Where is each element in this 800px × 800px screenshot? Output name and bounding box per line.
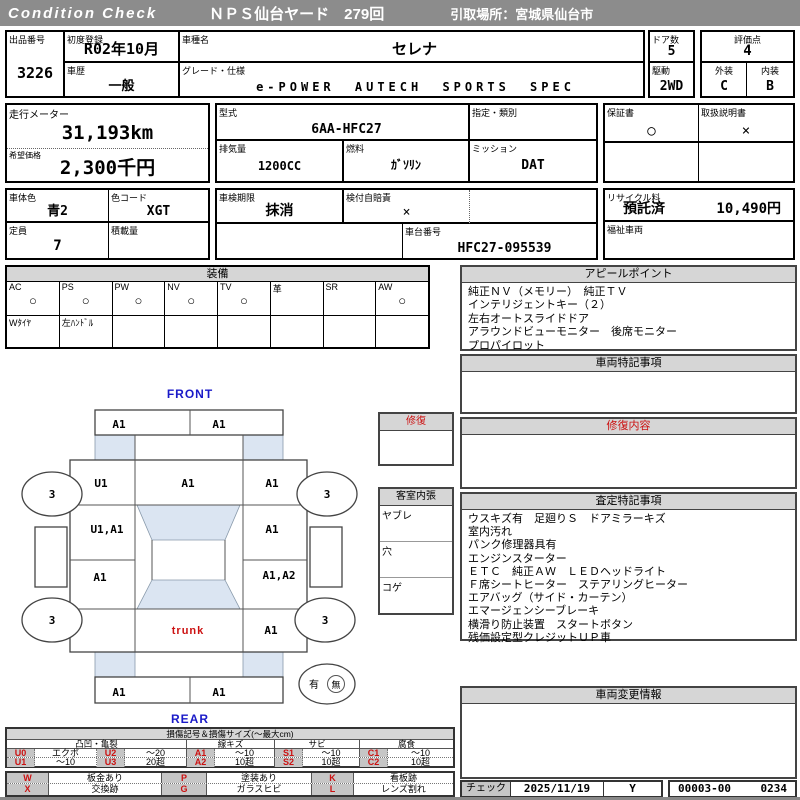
equipment-mark: ○ — [113, 293, 165, 308]
equipment-mark: ○ — [376, 293, 428, 308]
insurance-cell: 検付自賠責 × — [344, 190, 470, 224]
mark-code: G — [162, 784, 207, 795]
panel-rear-bumper-right: A1 — [212, 686, 226, 699]
interior-grade-cell: 内装 B — [747, 63, 793, 96]
equipment-label: 革 — [273, 282, 282, 295]
spare-absent-label: 無 — [331, 679, 340, 690]
equipment-cell-leather: 革 — [271, 282, 324, 315]
panel-rear-bumper-left: A1 — [112, 686, 126, 699]
odometer-price-table: 走行メーター 31,193km 希望価格 2,300千円 — [5, 103, 210, 183]
recycle-fee-value: 預託済 10,490円 — [607, 198, 791, 218]
drive-label: 駆動 — [652, 64, 670, 77]
wheel-tread-front-left: 3 — [49, 488, 56, 501]
panel-rear-door-left: A1 — [93, 571, 107, 584]
panel-front-door-right: A1 — [265, 523, 279, 536]
door-count-value: 5 — [652, 44, 691, 59]
mark-desc: 板金あり — [49, 773, 162, 783]
door-count-cell: ドア数 5 — [650, 32, 693, 63]
rear-window-shade — [137, 580, 240, 609]
capacity-value: 7 — [9, 238, 106, 254]
equipment-note: Wﾀｲﾔ — [9, 316, 31, 329]
pickup-location: 引取場所：宮城県仙台市 — [450, 4, 593, 23]
warranty-book-cell: 保証書 ○ — [605, 105, 699, 143]
windshield-shade — [137, 505, 240, 540]
front-label: FRONT — [167, 387, 213, 401]
recycle-status: 預託済 — [623, 198, 665, 218]
rocker-panel-left — [35, 527, 67, 587]
check-date: 2025/11/19 — [511, 782, 604, 796]
chassis-number-cell: 車台番号 HFC27-095539 — [403, 224, 596, 258]
legend-code: A1 — [187, 749, 215, 757]
legend-code: C1 — [360, 749, 388, 757]
assessment-notes-title: 査定特記事項 — [462, 494, 795, 510]
panel-front-door-left: U1,A1 — [90, 523, 123, 536]
legend-size: 〜10 — [303, 749, 360, 757]
grade-value: e-POWER AUTECH SPORTS SPEC — [182, 80, 641, 94]
equipment-cell-aw: AW○ — [376, 282, 428, 315]
model-code-cell: 型式 6AA-HFC27 — [217, 105, 470, 141]
transmission-cell: ミッション DAT — [470, 141, 596, 181]
wheel-tread-rear-right: 3 — [322, 614, 329, 627]
rear-label: REAR — [171, 712, 209, 726]
history-cell: 車歴 一般 — [65, 63, 180, 96]
lot-number-cell: 出品番号 3226 — [7, 32, 65, 96]
mark-code: P — [162, 773, 207, 783]
first-registration-cell: 初度登録 R02年10月 — [65, 32, 180, 63]
drive-value: 2WD — [652, 79, 691, 94]
equipment-note-cell — [165, 316, 218, 348]
insurance-empty-cell — [470, 190, 596, 224]
exterior-grade-value: C — [704, 79, 744, 94]
color-code-label: 色コード — [111, 191, 147, 204]
spec-table: 型式 6AA-HFC27 指定・類別 排気量 1200CC 燃料 ｶﾞｿﾘﾝ ミ… — [215, 103, 598, 183]
check-label: チェック — [462, 782, 511, 796]
interior-grade-value: B — [749, 79, 791, 94]
assessment-notes-body: ウスキズ有 足廻りＳ ドアミラーキズ 室内汚れ パンク修理器具有 エンジンスター… — [462, 510, 795, 648]
exterior-grade-label: 外装 — [702, 64, 746, 77]
equipment-note-cell — [376, 316, 428, 348]
welfare-vehicle-label: 福祉車両 — [607, 223, 643, 236]
capacity-label: 定員 — [9, 224, 27, 237]
owners-manual-cell: 取扱説明書 × — [699, 105, 793, 143]
rear-pillar-left-shade — [95, 652, 135, 677]
fuel-value: ｶﾞｿﾘﾝ — [346, 156, 466, 173]
transmission-label: ミッション — [472, 142, 517, 155]
repair-flag-title: 修復 — [380, 414, 452, 431]
lot-number-value: 3226 — [9, 64, 61, 82]
equipment-cell-ac: AC○ — [7, 282, 60, 315]
recycle-amount: 10,490円 — [716, 198, 781, 218]
rocker-panel-right — [310, 527, 342, 587]
color-capacity-table: 車体色 青2 色コード XGT 定員 7 積載量 — [5, 188, 210, 260]
cabin-interior-box: 客室内張 ヤブレ 穴 コゲ — [378, 487, 454, 615]
model-code-value: 6AA-HFC27 — [219, 122, 466, 137]
panel-cowl-center: A1 — [181, 477, 195, 490]
doc-code-row: 00003-00 0234 — [668, 780, 797, 798]
interior-grade-label: 内装 — [747, 64, 793, 77]
owners-manual-label: 取扱説明書 — [701, 106, 746, 119]
auction-condition-sheet: Condition Check ＮＰＳ仙台ヤード 279回 引取場所：宮城県仙台… — [0, 0, 800, 800]
assessment-line: ＥＴＣ 純正ＡＷ ＬＥＤヘッドライト — [468, 566, 789, 579]
equipment-mark: ○ — [60, 293, 112, 308]
legend-code: U2 — [97, 749, 125, 757]
assessment-line: ウスキズ有 足廻りＳ ドアミラーキズ — [468, 513, 789, 526]
assessment-line: 室内汚れ — [468, 526, 789, 539]
door-drive-table: ドア数 5 駆動 2WD — [648, 30, 695, 98]
odometer-value: 31,193km — [9, 122, 206, 144]
assessment-line: パンク修理器具有 — [468, 539, 789, 552]
odometer-cell: 走行メーター 31,193km — [7, 105, 208, 149]
load-capacity-cell: 積載量 — [109, 223, 208, 258]
repair-details-title: 修復内容 — [462, 419, 795, 435]
repair-flag-box: 修復 — [378, 412, 454, 466]
equipment-cell-tv: TV○ — [218, 282, 271, 315]
equipment-note-cell — [271, 316, 324, 348]
legend-size: 〜20 — [125, 749, 187, 757]
header-bar: Condition Check ＮＰＳ仙台ヤード 279回 引取場所：宮城県仙台… — [0, 0, 800, 26]
chassis-number-label: 車台番号 — [405, 225, 441, 238]
panel-front-bumper-right: A1 — [212, 418, 226, 431]
grade-label: グレード・仕様 — [182, 64, 245, 77]
legend-code: U3 — [97, 758, 125, 767]
insurance-label: 検付自賠責 — [346, 191, 391, 204]
change-info-body — [462, 704, 795, 710]
change-info-section: 車両変更情報 — [460, 686, 797, 779]
chassis-empty-cell — [217, 224, 403, 258]
legend-size: 10超 — [388, 758, 453, 767]
assessment-line: 残価設定型クレジットＵＰ車 — [468, 632, 789, 645]
equipment-note: 左ﾊﾝﾄﾞﾙ — [62, 316, 94, 329]
owners-manual-value: × — [701, 123, 791, 139]
appeal-line: 左右オートスライドドア — [468, 313, 789, 326]
mark-desc: ガラスヒビ — [207, 784, 312, 795]
legend-code: C2 — [360, 758, 388, 767]
model-name-cell: 車種名 セレナ — [180, 32, 643, 63]
mark-code: X — [7, 784, 49, 795]
rear-pillar-right-shade — [243, 652, 283, 677]
legend-size: 20超 — [125, 758, 187, 767]
equipment-note-cell: Wﾀｲﾔ — [7, 316, 60, 348]
cabin-interior-title: 客室内張 — [380, 489, 452, 506]
equipment-label: AW — [378, 282, 392, 292]
vehicle-notes-body — [462, 372, 795, 378]
legend-code: U1 — [7, 758, 35, 767]
cabin-interior-row-burn: コゲ — [380, 578, 452, 611]
chassis-number-value: HFC27-095539 — [405, 241, 594, 256]
warranty-book-label: 保証書 — [607, 106, 634, 119]
legend-code: U0 — [7, 749, 35, 757]
trunk-label: trunk — [172, 625, 205, 637]
score-cell: 評価点 4 — [702, 32, 793, 63]
equipment-label: AC — [9, 282, 22, 292]
equipment-label: PW — [115, 282, 130, 292]
odometer-label: 走行メーター — [9, 106, 69, 121]
cabin-interior-row-hole: 穴 — [380, 542, 452, 578]
fuel-cell: 燃料 ｶﾞｿﾘﾝ — [344, 141, 470, 181]
vehicle-notes-title: 車両特記事項 — [462, 356, 795, 372]
equipment-cell-pw: PW○ — [113, 282, 166, 315]
score-value: 4 — [704, 43, 791, 59]
equipment-table: 装備 AC○ PS○ PW○ NV○ TV○ 革 SR AW○ Wﾀｲﾔ 左ﾊﾝ… — [5, 265, 430, 349]
appeal-line: インテリジェントキー（２） — [468, 299, 789, 312]
mark-desc: 看板跡 — [354, 773, 453, 783]
first-registration-value: R02年10月 — [67, 38, 176, 59]
documents-empty-cell-right — [699, 143, 793, 181]
legend-size: 10超 — [303, 758, 360, 767]
model-code-label: 型式 — [219, 106, 237, 119]
exterior-grade-cell: 外装 C — [702, 63, 747, 96]
panel-rear-quarter-right: A1,A2 — [262, 569, 295, 582]
equipment-mark: ○ — [218, 293, 270, 308]
spare-present-label: 有 — [309, 678, 319, 691]
mark-desc: レンズ割れ — [354, 784, 453, 795]
legend-size: エクボ — [35, 749, 97, 757]
mark-code: L — [312, 784, 354, 795]
wheel-tread-rear-left: 3 — [49, 614, 56, 627]
documents-table: 保証書 ○ 取扱説明書 × — [603, 103, 795, 183]
displacement-label: 排気量 — [219, 142, 246, 155]
body-color-cell: 車体色 青2 — [7, 190, 109, 223]
panel-front-fender-right: A1 — [265, 477, 279, 490]
recycle-welfare-table: リサイクル料 預託済 10,490円 福祉車両 — [603, 188, 795, 260]
wheel-tread-front-right: 3 — [324, 488, 331, 501]
documents-empty-cell-left — [605, 143, 699, 181]
recycle-fee-cell: リサイクル料 預託済 10,490円 — [605, 190, 793, 222]
appeal-points-section: アピールポイント 純正ＮＶ（メモリー） 純正ＴＶ インテリジェントキー（２） 左… — [460, 265, 797, 351]
panel-front-bumper-left: A1 — [112, 418, 126, 431]
doc-code: 00003-00 — [678, 782, 731, 796]
displacement-value: 1200CC — [219, 159, 340, 173]
panel-front-fender-left: U1 — [94, 477, 108, 490]
equipment-note-cell — [324, 316, 377, 348]
inspection-expiry-value: 抹消 — [219, 200, 340, 220]
legend-code: S1 — [275, 749, 303, 757]
capacity-cell: 定員 7 — [7, 223, 109, 258]
legend-size: 〜10 — [215, 749, 275, 757]
equipment-note-cell — [113, 316, 166, 348]
cabin-interior-row-tear: ヤブレ — [380, 506, 452, 542]
legend-code: S2 — [275, 758, 303, 767]
grade-cell: グレード・仕様 e-POWER AUTECH SPORTS SPEC — [180, 63, 643, 96]
designation-label: 指定・類別 — [472, 106, 517, 119]
equipment-note-cell: 左ﾊﾝﾄﾞﾙ — [60, 316, 113, 348]
panel-trunk-side-right: A1 — [264, 624, 278, 637]
condition-check-logo: Condition Check — [8, 5, 157, 22]
body-color-value: 青2 — [9, 200, 106, 219]
check-date-row: チェック 2025/11/19 Y — [460, 780, 663, 798]
asking-price-cell: 希望価格 2,300千円 — [7, 149, 208, 181]
welfare-vehicle-cell: 福祉車両 — [605, 222, 793, 258]
equipment-mark: ○ — [165, 293, 217, 308]
assessment-notes-section: 査定特記事項 ウスキズ有 足廻りＳ ドアミラーキズ 室内汚れ パンク修理器具有 … — [460, 492, 797, 641]
mark-code: K — [312, 773, 354, 783]
appeal-line: 純正ＮＶ（メモリー） 純正ＴＶ — [468, 286, 789, 299]
warranty-book-value: ○ — [607, 123, 696, 139]
doc-number: 0234 — [761, 782, 788, 796]
repair-marks-table: W 板金あり P 塗装あり K 看板跡 X 交換跡 G ガラスヒビ L レンズ割… — [5, 771, 455, 797]
legend-size: 10超 — [215, 758, 275, 767]
load-capacity-label: 積載量 — [111, 224, 138, 237]
legend-size: 〜10 — [388, 749, 453, 757]
front-pillar-right-shade — [243, 435, 283, 460]
front-pillar-left-shade — [95, 435, 135, 460]
repair-details-body — [462, 435, 795, 441]
equipment-cell-sr: SR — [324, 282, 377, 315]
fuel-label: 燃料 — [346, 142, 364, 155]
asking-price-value: 2,300千円 — [9, 153, 206, 180]
assessment-line: エアバッグ（サイド・カーテン） — [468, 592, 789, 605]
displacement-cell: 排気量 1200CC — [217, 141, 344, 181]
color-code-value: XGT — [111, 204, 206, 219]
model-name-value: セレナ — [182, 38, 641, 59]
appeal-points-title: アピールポイント — [462, 267, 795, 283]
equipment-label: PS — [62, 282, 74, 292]
score-table: 評価点 4 外装 C 内装 B — [700, 30, 795, 98]
legend-size: 〜10 — [35, 758, 97, 767]
transmission-value: DAT — [472, 158, 594, 173]
assessment-line: Ｆ席シートヒーター ステアリングヒーター — [468, 579, 789, 592]
mark-desc: 塗装あり — [207, 773, 312, 783]
auction-title: ＮＰＳ仙台ヤード 279回 — [209, 3, 384, 24]
equipment-cell-ps: PS○ — [60, 282, 113, 315]
damage-legend-table: 損傷記号＆損傷サイズ(〜最大cm) 凸凹・亀裂 線キズ サビ 腐食 U0 エクボ… — [5, 727, 455, 768]
equipment-label: NV — [167, 282, 180, 292]
color-code-cell: 色コード XGT — [109, 190, 208, 223]
equipment-cell-nv: NV○ — [165, 282, 218, 315]
legend-code: A2 — [187, 758, 215, 767]
inspection-expiry-cell: 車検期限 抹消 — [217, 190, 344, 224]
assessment-line: 横滑り防止装置 スタートボタン — [468, 619, 789, 632]
vehicle-notes-section: 車両特記事項 — [460, 354, 797, 414]
equipment-label: SR — [326, 282, 339, 292]
change-info-title: 車両変更情報 — [462, 688, 795, 704]
check-mark: Y — [604, 782, 661, 796]
repair-details-section: 修復内容 — [460, 417, 797, 489]
appeal-points-body: 純正ＮＶ（メモリー） 純正ＴＶ インテリジェントキー（２） 左右オートスライドド… — [462, 283, 795, 356]
inspection-chassis-table: 車検期限 抹消 検付自賠責 × 車台番号 HFC27-095539 — [215, 188, 598, 260]
vehicle-id-table: 出品番号 3226 初度登録 R02年10月 車歴 一般 車種名 セレナ グレー… — [5, 30, 645, 98]
assessment-line: エンジンスターター — [468, 553, 789, 566]
equipment-title: 装備 — [7, 267, 428, 282]
equipment-label: TV — [220, 282, 232, 292]
lot-number-label: 出品番号 — [9, 33, 45, 46]
car-damage-diagram: FRONT REAR A1 A1 U1 A1 A1 U1,A1 A1 A1 A1… — [0, 385, 375, 730]
history-value: 一般 — [67, 75, 176, 94]
appeal-line: アラウンドビューモニター 後席モニター — [468, 326, 789, 339]
equipment-mark: ○ — [7, 293, 59, 308]
insurance-value: × — [346, 205, 467, 220]
drive-cell: 駆動 2WD — [650, 63, 693, 96]
mark-desc: 交換跡 — [49, 784, 162, 795]
equipment-note-cell — [218, 316, 271, 348]
appeal-line: プロパイロット — [468, 340, 789, 353]
designation-cell: 指定・類別 — [470, 105, 596, 141]
assessment-line: エマージェンシーブレーキ — [468, 605, 789, 618]
mark-code: W — [7, 773, 49, 783]
